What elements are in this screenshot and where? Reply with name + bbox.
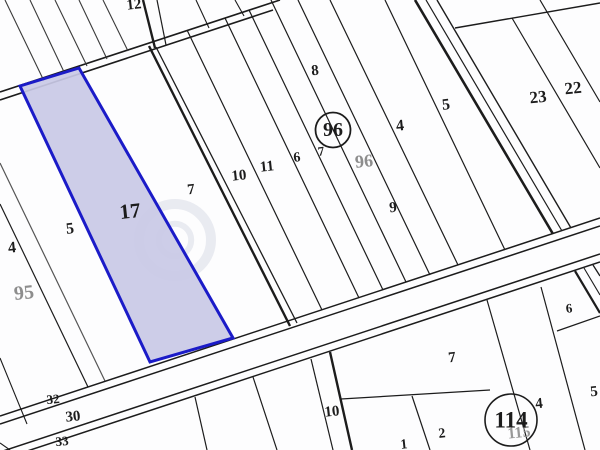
parcel-label: 11 [259,158,275,175]
map-viewport[interactable]: 1284523221011679697175495323033107214115… [0,0,600,450]
cadastral-map[interactable]: 1284523221011679697175495323033107214115… [0,0,600,450]
block-number: 96 [323,119,343,141]
parcel-label: 10 [231,167,248,184]
parcel-label: 96 [354,150,374,172]
parcel-label: 95 [13,281,35,305]
parcel-label: 10 [324,403,341,420]
parcel-label: 32 [46,391,60,407]
parcel-label: 22 [564,78,583,99]
parcel-label: 12 [126,0,143,14]
block-number: 114 [494,408,528,433]
parcel-label: 33 [55,433,70,449]
parcel-label: 17 [118,198,141,224]
parcel-label: 30 [65,408,82,425]
parcel-label: 23 [529,87,548,108]
